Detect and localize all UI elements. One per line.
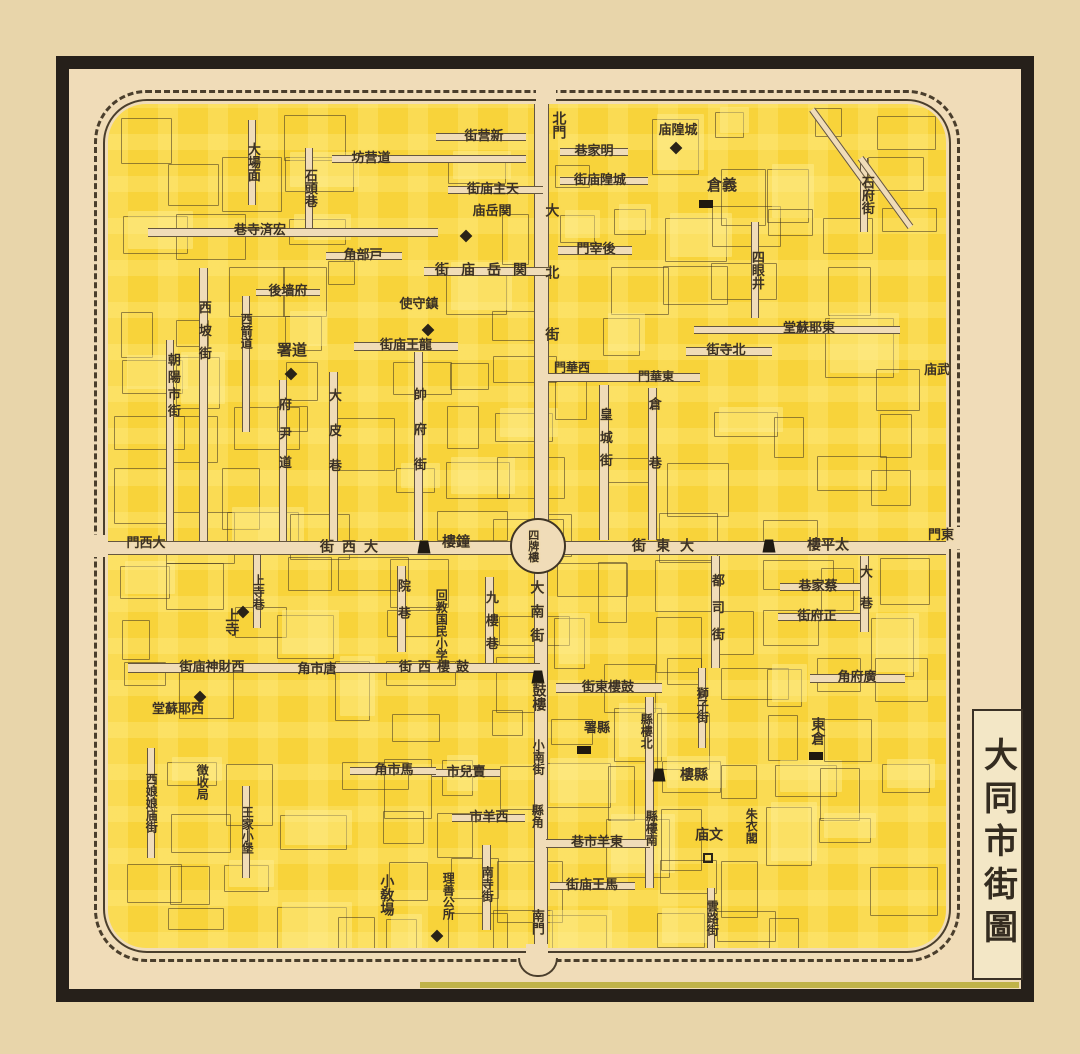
- map-label: 街庙王龍: [380, 339, 432, 353]
- map-label: 雲路街: [706, 900, 719, 936]
- map-label: 街東樓鼓: [582, 681, 634, 695]
- city-block: [334, 418, 395, 471]
- map-title-box: 大同市街圖: [972, 709, 1023, 980]
- print-offset-patch: [772, 664, 807, 702]
- city-block: [655, 560, 712, 612]
- map-label: 署道: [277, 343, 307, 359]
- print-offset-patch: [657, 114, 703, 170]
- map-label: 府尹道: [276, 398, 290, 485]
- map-label: 巷家蔡: [798, 580, 837, 594]
- city-block: [824, 719, 872, 762]
- city-block: [168, 908, 224, 930]
- print-offset-patch: [550, 910, 612, 948]
- map-label: 堂蘇耶西: [152, 703, 204, 717]
- city-block: [870, 867, 938, 916]
- print-offset-patch: [887, 759, 934, 788]
- map-label: 樓平太: [807, 539, 849, 554]
- map-label: 小南街: [532, 739, 545, 775]
- map-label: 西坡街: [196, 301, 210, 370]
- map-label: 街寺北: [706, 344, 745, 358]
- city-block: [383, 811, 424, 844]
- print-offset-patch: [285, 810, 353, 846]
- map-label: 庙岳関: [472, 205, 511, 219]
- print-offset-patch: [830, 313, 899, 373]
- map-label: 都司街: [709, 574, 723, 655]
- map-label: 四眼井: [749, 251, 763, 290]
- map-label: 門東: [928, 529, 954, 543]
- street: [148, 228, 438, 237]
- map-label: 石府街: [859, 176, 873, 215]
- map-label: 角部戸: [343, 249, 382, 263]
- map-label: 王家小堡: [241, 806, 254, 854]
- map-label: 縣樓北: [640, 713, 653, 749]
- city-block: [121, 312, 153, 358]
- print-offset-patch: [282, 610, 339, 653]
- print-offset-patch: [720, 107, 750, 133]
- city-block: [121, 118, 171, 164]
- city-block: [717, 911, 776, 942]
- east-granary-icon: [809, 752, 823, 760]
- map-label: 大巷: [857, 565, 871, 627]
- city-block: [774, 417, 804, 458]
- map-label: 大場面: [245, 143, 259, 182]
- map-label: 四牌樓: [527, 530, 539, 563]
- city-block: [122, 620, 150, 660]
- city-block: [447, 406, 480, 449]
- map-label: 後墙府: [268, 285, 307, 299]
- map-label: 倉義: [707, 178, 737, 194]
- map-label: 街营新: [464, 130, 503, 144]
- map-label: 街府正: [797, 610, 836, 624]
- map-label: 使守鎮: [399, 298, 438, 312]
- city-block: [502, 214, 528, 266]
- city-block: [876, 369, 919, 412]
- map-label: 市羊西: [469, 811, 508, 825]
- print-offset-patch: [559, 613, 590, 665]
- city-block: [667, 463, 729, 517]
- map-label: 九樓巷: [483, 591, 497, 660]
- city-block: [168, 164, 219, 207]
- city-block: [880, 558, 930, 605]
- map-label: 大南街: [529, 580, 544, 652]
- map-label: 角府廣: [837, 671, 876, 685]
- city-block: [497, 457, 565, 499]
- county-office-icon: [577, 746, 591, 754]
- city-block: [328, 261, 354, 285]
- city-block: [768, 209, 813, 236]
- map-label: 朱衣閣: [745, 808, 758, 844]
- map-label: 上寺巷: [252, 574, 265, 610]
- city-block: [880, 414, 912, 458]
- map-label: 庙文: [695, 829, 723, 844]
- map-label: 大皮巷: [326, 389, 340, 494]
- map-label: 角市馬: [374, 764, 413, 778]
- city-block: [389, 862, 428, 902]
- map-label: 南門: [529, 909, 543, 935]
- city-block: [769, 918, 799, 948]
- map-label: 坊营道: [351, 152, 390, 166]
- city-block: [170, 416, 219, 463]
- map-label: 東倉: [810, 717, 825, 745]
- map-label: 樓縣: [680, 769, 708, 784]
- map-label: 朝陽市街: [165, 353, 179, 421]
- map-label: 市兒賣: [446, 766, 485, 780]
- map-label: 小敎場: [379, 874, 394, 916]
- print-offset-patch: [719, 407, 783, 432]
- map-label: 院巷: [395, 579, 409, 633]
- map-label: 帥府街: [411, 388, 425, 493]
- city-block: [711, 263, 776, 300]
- wenmiao-marker-icon: [703, 853, 713, 863]
- yicang-granary-icon: [699, 200, 713, 208]
- map-label: 縣樓南: [645, 810, 658, 846]
- map-label: 巷家明: [574, 145, 613, 159]
- city-block: [170, 866, 210, 906]
- city-block: [171, 814, 230, 853]
- north-gate-opening: [536, 85, 556, 102]
- map-label: 庙武: [924, 364, 950, 378]
- map-label: 堂蘇耶東: [783, 322, 835, 336]
- print-offset-patch: [771, 802, 817, 861]
- city-block: [721, 861, 757, 918]
- print-offset-patch: [662, 908, 710, 943]
- map-label: 西箭道: [240, 313, 253, 349]
- map-label: 街庙隍城: [574, 174, 626, 188]
- map-label: 皇城街: [597, 408, 611, 477]
- print-offset-patch: [608, 313, 644, 351]
- map-label: 街庙神財西: [179, 661, 244, 675]
- city-block: [608, 766, 635, 821]
- bottom-olive-strip: [420, 982, 1019, 988]
- print-offset-patch: [229, 860, 274, 887]
- map-title: 大同市街圖: [981, 737, 1015, 952]
- map-label: 樓鐘: [442, 536, 470, 551]
- map-label: 石頭巷: [302, 169, 316, 208]
- map-label: 獅子街: [696, 687, 709, 723]
- map-label: 街東大: [632, 540, 704, 555]
- map-label: 縣角: [531, 804, 544, 828]
- city-block: [288, 557, 332, 590]
- city-block: [392, 714, 440, 742]
- map-label: 街庙岳関: [435, 264, 539, 279]
- city-block: [598, 562, 627, 623]
- map-label: 門華東: [638, 371, 674, 384]
- map-label: 角市唐: [297, 663, 336, 677]
- city-block: [611, 267, 669, 316]
- city-block: [114, 468, 167, 524]
- map-label: 門華西: [554, 362, 590, 375]
- city-block: [721, 765, 757, 800]
- city-block: [338, 917, 375, 948]
- map-label: 倉巷: [646, 397, 660, 515]
- map-label: 庙隍城: [658, 124, 697, 138]
- city-block: [450, 363, 489, 390]
- map-label: 街西大: [320, 541, 386, 556]
- map-label: 門宰後: [576, 243, 615, 257]
- city-block: [871, 470, 911, 506]
- map-label: 上寺: [224, 608, 239, 636]
- city-block: [492, 710, 523, 736]
- city-block: [877, 116, 936, 151]
- print-offset-patch: [565, 210, 600, 238]
- map-label: 街庙王馬: [566, 879, 618, 893]
- print-offset-patch: [824, 813, 876, 839]
- map-label: 徴收局: [196, 764, 209, 800]
- print-offset-patch: [391, 914, 422, 948]
- map-label: 西娘娘庙街: [145, 773, 158, 833]
- map-label: 回教国民小学: [435, 589, 448, 661]
- west-gate-opening: [88, 535, 105, 557]
- map-label: 門西大: [126, 537, 165, 551]
- map-label: 街西樓鼓: [399, 661, 475, 675]
- map-label: 北門: [551, 111, 566, 139]
- map-label: 巷寺済宏: [234, 224, 286, 238]
- print-offset-patch: [619, 204, 651, 230]
- print-offset-patch: [500, 408, 558, 437]
- city-block: [768, 715, 798, 761]
- map-label: 鼓樓: [531, 683, 546, 711]
- map-label: 南寺街: [481, 866, 494, 902]
- print-offset-patch: [550, 758, 617, 802]
- map-page: 北門街营新坊营道巷家明街庙隍城庙隍城倉義石府街四眼井大場面石頭巷巷寺済宏街庙主天…: [0, 0, 1080, 1054]
- city-block: [166, 563, 224, 610]
- map-label: 街庙主天: [467, 183, 519, 197]
- map-label: 署縣: [584, 722, 610, 736]
- map-label: 巷市羊東: [571, 836, 623, 850]
- city-block: [492, 311, 537, 341]
- city-block: [828, 267, 871, 317]
- map-label: 理善公所: [442, 872, 455, 920]
